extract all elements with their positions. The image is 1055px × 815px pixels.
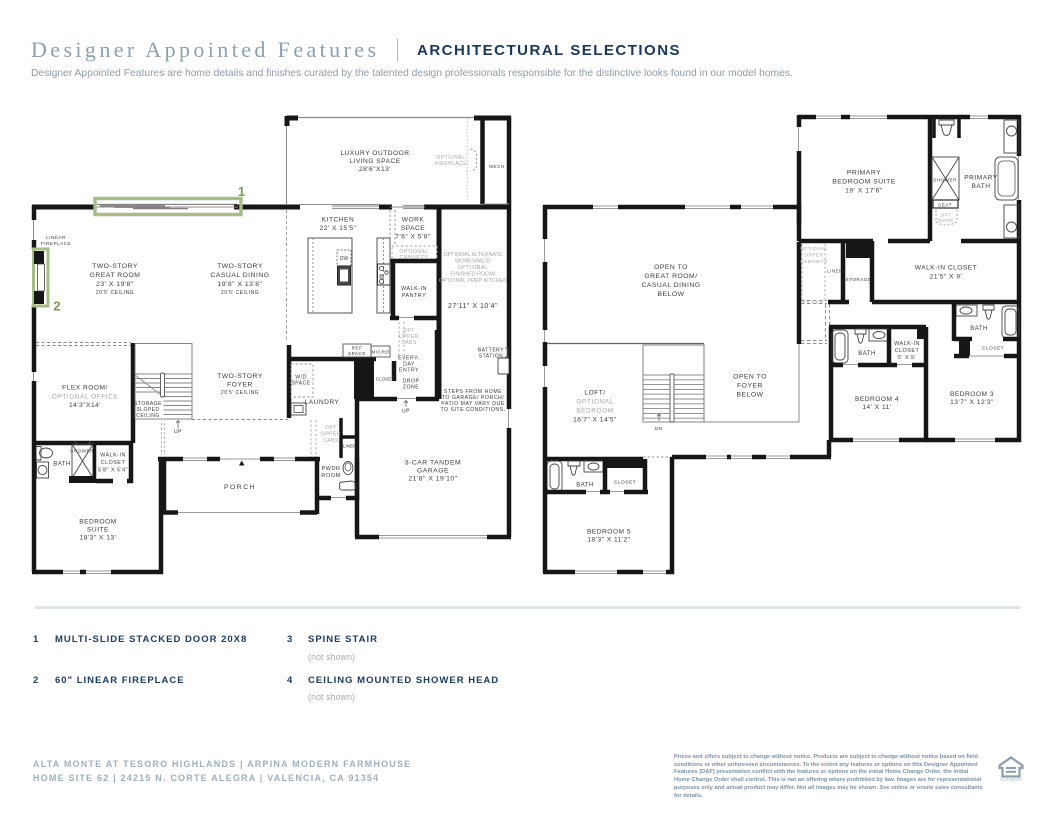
svg-text:SHOWER: SHOWER <box>933 178 957 183</box>
svg-text:BATH: BATH <box>858 351 876 357</box>
svg-text:KITCHEN: KITCHEN <box>322 217 354 224</box>
svg-text:BEDROOM 3: BEDROOM 3 <box>950 391 994 398</box>
svg-text:3-CAR TANDEM: 3-CAR TANDEM <box>405 460 461 467</box>
svg-text:LAUNDRY: LAUNDRY <box>305 399 340 406</box>
svg-text:TWO-STORY: TWO-STORY <box>217 263 263 270</box>
svg-text:GARAGE: GARAGE <box>417 468 449 475</box>
svg-text:TWO-STORY: TWO-STORY <box>92 263 138 270</box>
svg-text:BATH: BATH <box>970 326 988 332</box>
svg-text:DN: DN <box>655 426 663 431</box>
svg-text:OPTIONAL: OPTIONAL <box>800 246 828 252</box>
svg-text:REF: REF <box>352 346 363 351</box>
svg-text:PRIMARY: PRIMARY <box>964 175 998 182</box>
svg-text:WALK-IN: WALK-IN <box>894 341 920 347</box>
svg-text:BATH: BATH <box>971 183 990 190</box>
svg-text:LINEN: LINEN <box>827 269 842 274</box>
svg-text:EQUAL HOUSING: EQUAL HOUSING <box>1000 778 1022 782</box>
svg-text:PANTRY: PANTRY <box>402 293 426 299</box>
svg-text:GREAT ROOM/: GREAT ROOM/ <box>644 273 697 280</box>
svg-text:CABINETS: CABINETS <box>800 259 828 265</box>
svg-text:20'5' CEILING: 20'5' CEILING <box>96 290 134 296</box>
svg-text:TWO-STORY: TWO-STORY <box>217 373 263 380</box>
svg-text:18'3" X 11'2": 18'3" X 11'2" <box>587 537 630 544</box>
svg-text:CASUAL DINING: CASUAL DINING <box>210 272 269 279</box>
svg-text:BEDROOM SUITE: BEDROOM SUITE <box>832 179 896 186</box>
svg-text:UPPER: UPPER <box>321 432 341 438</box>
svg-text:22' X 15'5": 22' X 15'5" <box>320 225 357 232</box>
svg-text:18'3" X 13': 18'3" X 13' <box>80 535 117 542</box>
svg-text:WALK-IN CLOSET: WALK-IN CLOSET <box>915 265 977 272</box>
svg-text:23' X 19'8": 23' X 19'8" <box>96 281 134 288</box>
svg-text:21'8" X 19'10": 21'8" X 19'10" <box>408 476 457 483</box>
svg-text:CEILING: CEILING <box>136 413 160 419</box>
svg-text:BEDROOM 5: BEDROOM 5 <box>587 529 631 536</box>
svg-text:OPTIONAL PREP KITCHEN: OPTIONAL PREP KITCHEN <box>439 278 507 284</box>
svg-text:CLOSET: CLOSET <box>982 346 1004 352</box>
svg-text:WORK: WORK <box>402 217 425 224</box>
svg-text:CABINETS: CABINETS <box>399 255 428 261</box>
svg-text:OPEN TO: OPEN TO <box>654 264 688 271</box>
svg-text:FIREPLACE: FIREPLACE <box>435 161 467 167</box>
svg-text:UP: UP <box>402 409 410 415</box>
svg-text:20'5' CEILING: 20'5' CEILING <box>221 290 259 296</box>
svg-text:BEDROOM: BEDROOM <box>79 519 117 526</box>
svg-text:CABS: CABS <box>401 340 417 346</box>
svg-text:CABS: CABS <box>323 438 339 444</box>
svg-text:ZONE: ZONE <box>403 385 419 391</box>
svg-text:PORCH: PORCH <box>224 484 256 491</box>
svg-text:TO SITE CONDITIONS.: TO SITE CONDITIONS. <box>440 407 505 413</box>
svg-text:LIVING SPACE: LIVING SPACE <box>349 158 400 165</box>
svg-text:WALK-IN: WALK-IN <box>401 286 427 292</box>
svg-text:14' X 11': 14' X 11' <box>862 404 891 411</box>
svg-text:MECH: MECH <box>489 164 505 169</box>
svg-text:PWDR: PWDR <box>321 466 340 472</box>
svg-text:DOOR: DOOR <box>938 218 953 223</box>
svg-text:FINISHED ROOM/: FINISHED ROOM/ <box>451 272 496 278</box>
svg-text:BELOW: BELOW <box>736 392 763 399</box>
svg-text:STATION: STATION <box>479 354 503 360</box>
svg-text:7'6" X 5'8": 7'6" X 5'8" <box>395 234 431 241</box>
svg-text:CLOSET: CLOSET <box>614 480 636 486</box>
svg-text:14'3"X14': 14'3"X14' <box>69 402 101 409</box>
svg-text:LUXURY OUTDOOR: LUXURY OUTDOOR <box>340 150 409 157</box>
svg-text:BEDROOM 4: BEDROOM 4 <box>855 396 899 403</box>
svg-text:19'8" X 13'8": 19'8" X 13'8" <box>218 281 263 288</box>
svg-text:MICRO: MICRO <box>371 350 389 355</box>
svg-text:WORKSPACE/: WORKSPACE/ <box>455 259 492 265</box>
svg-text:OPTIONAL ALTERNATE: OPTIONAL ALTERNATE <box>443 252 503 258</box>
svg-text:CLOSET: CLOSET <box>895 348 920 354</box>
svg-text:DW: DW <box>340 256 349 262</box>
svg-text:1: 1 <box>238 184 245 199</box>
svg-text:5' X 5': 5' X 5' <box>898 355 916 361</box>
svg-text:SUITE: SUITE <box>87 527 109 534</box>
svg-text:OPTIONAL: OPTIONAL <box>457 265 488 271</box>
svg-text:ROOM: ROOM <box>321 473 340 479</box>
svg-text:SPACE: SPACE <box>348 351 366 356</box>
svg-text:BATH: BATH <box>576 483 594 489</box>
svg-text:BEDROOM: BEDROOM <box>576 408 614 415</box>
svg-text:WALK-IN: WALK-IN <box>100 453 126 459</box>
svg-text:OPT: OPT <box>325 425 337 431</box>
svg-text:SEAT: SEAT <box>938 203 952 209</box>
svg-text:BATH: BATH <box>53 462 71 468</box>
svg-text:PRIMARY: PRIMARY <box>847 170 881 177</box>
svg-text:FOYER: FOYER <box>227 382 253 389</box>
svg-text:ENTRY: ENTRY <box>399 368 419 374</box>
svg-text:16'7" X 14'5": 16'7" X 14'5" <box>573 417 617 424</box>
svg-text:20'5' CEILING: 20'5' CEILING <box>221 390 259 396</box>
svg-text:CLOSET: CLOSET <box>376 377 395 382</box>
svg-text:SPACE: SPACE <box>291 381 310 387</box>
svg-text:FLEX ROOM/: FLEX ROOM/ <box>62 385 108 392</box>
svg-text:LINEN: LINEN <box>343 444 356 449</box>
svg-text:CASUAL DINING: CASUAL DINING <box>641 282 700 289</box>
svg-text:UPPER: UPPER <box>804 253 823 259</box>
svg-text:OPT: OPT <box>941 213 952 218</box>
svg-text:STORAGE: STORAGE <box>846 277 872 282</box>
svg-text:BELOW: BELOW <box>657 291 684 298</box>
svg-text:FOYER: FOYER <box>737 383 763 390</box>
svg-text:SPACE: SPACE <box>401 225 425 232</box>
svg-text:CLOSET: CLOSET <box>101 460 126 466</box>
svg-text:LOFT/: LOFT/ <box>584 390 605 397</box>
svg-text:19' X 17'6": 19' X 17'6" <box>845 188 883 195</box>
svg-text:28'6"X13': 28'6"X13' <box>359 166 391 173</box>
svg-text:GREAT ROOM: GREAT ROOM <box>90 272 141 279</box>
svg-text:27'11" X 10'4": 27'11" X 10'4" <box>448 303 498 310</box>
svg-text:21'5" X 9': 21'5" X 9' <box>930 274 963 281</box>
svg-text:OPTIONAL: OPTIONAL <box>576 399 613 406</box>
svg-text:OPTIONAL OFFICE: OPTIONAL OFFICE <box>52 394 119 401</box>
svg-text:SHOWER: SHOWER <box>70 449 94 454</box>
svg-text:FIREPLACE: FIREPLACE <box>41 241 71 246</box>
svg-text:OPEN TO: OPEN TO <box>733 374 767 381</box>
svg-text:13'7" X 12'3": 13'7" X 12'3" <box>950 399 994 406</box>
svg-text:5'8" X 5'4": 5'8" X 5'4" <box>98 468 128 474</box>
svg-text:2: 2 <box>53 299 60 314</box>
svg-text:UP: UP <box>174 429 182 435</box>
svg-text:LINEAR: LINEAR <box>46 235 66 240</box>
